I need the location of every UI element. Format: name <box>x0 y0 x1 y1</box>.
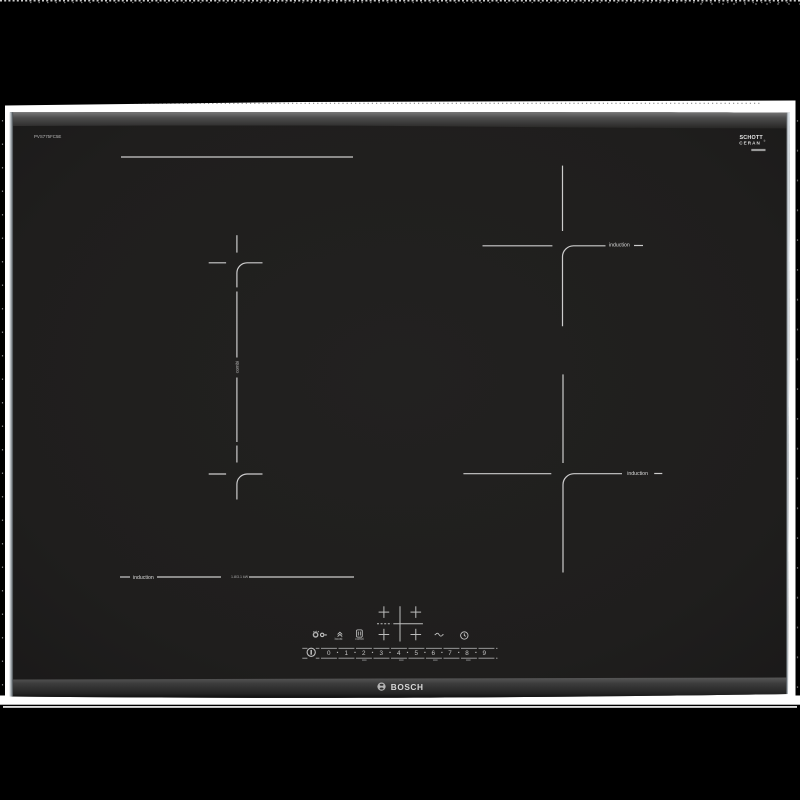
svg-text:boost: boost <box>335 637 343 641</box>
svg-text:8: 8 <box>465 650 469 657</box>
svg-text:induction: induction <box>133 575 154 581</box>
svg-text:1.8/3.1 kW: 1.8/3.1 kW <box>231 575 249 579</box>
svg-text:0: 0 <box>327 650 331 657</box>
svg-text:induction: induction <box>609 243 630 249</box>
svg-text:PVS775FC5E: PVS775FC5E <box>34 134 61 139</box>
svg-text:combi: combi <box>355 637 364 641</box>
svg-text:®: ® <box>764 139 766 143</box>
svg-text:9: 9 <box>483 650 487 657</box>
svg-text:2: 2 <box>362 650 366 657</box>
svg-text:5: 5 <box>415 650 419 657</box>
svg-text:combi: combi <box>235 361 240 373</box>
svg-text:4: 4 <box>397 650 401 657</box>
svg-text:BOSCH: BOSCH <box>391 682 424 692</box>
svg-text:CERAN: CERAN <box>739 140 761 145</box>
svg-text:3: 3 <box>380 650 384 657</box>
svg-text:6: 6 <box>432 650 436 657</box>
svg-text:1: 1 <box>345 650 349 657</box>
svg-text:induction: induction <box>627 471 648 477</box>
svg-text:7: 7 <box>448 650 452 657</box>
